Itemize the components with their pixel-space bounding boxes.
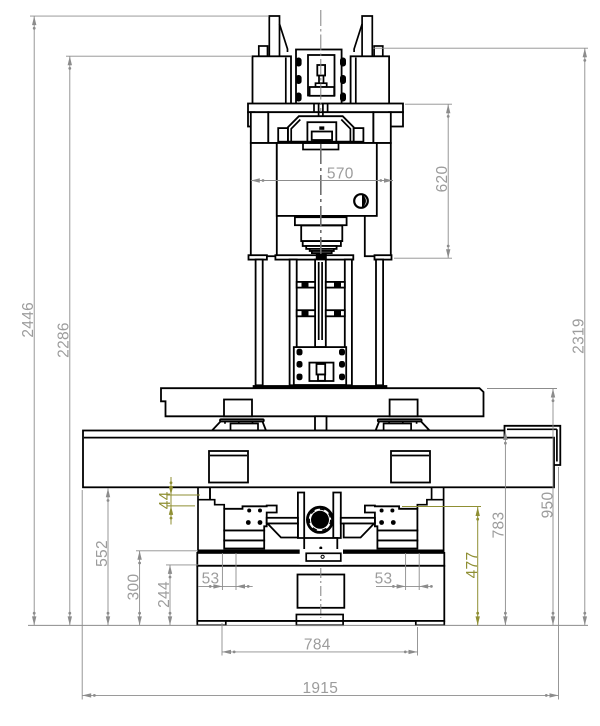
svg-text:477: 477 [464, 552, 481, 579]
svg-text:44: 44 [157, 491, 174, 509]
svg-text:300: 300 [125, 574, 142, 601]
svg-text:950: 950 [540, 492, 557, 519]
svg-text:620: 620 [434, 166, 451, 193]
svg-text:1915: 1915 [302, 680, 338, 697]
svg-text:783: 783 [490, 512, 507, 539]
svg-text:784: 784 [304, 637, 331, 654]
svg-text:53: 53 [202, 571, 220, 588]
svg-text:2286: 2286 [56, 322, 73, 358]
svg-text:552: 552 [94, 540, 111, 567]
svg-text:570: 570 [327, 165, 354, 182]
svg-text:53: 53 [375, 571, 393, 588]
svg-text:244: 244 [156, 581, 173, 608]
svg-text:2319: 2319 [571, 318, 588, 354]
svg-text:2446: 2446 [20, 302, 37, 338]
